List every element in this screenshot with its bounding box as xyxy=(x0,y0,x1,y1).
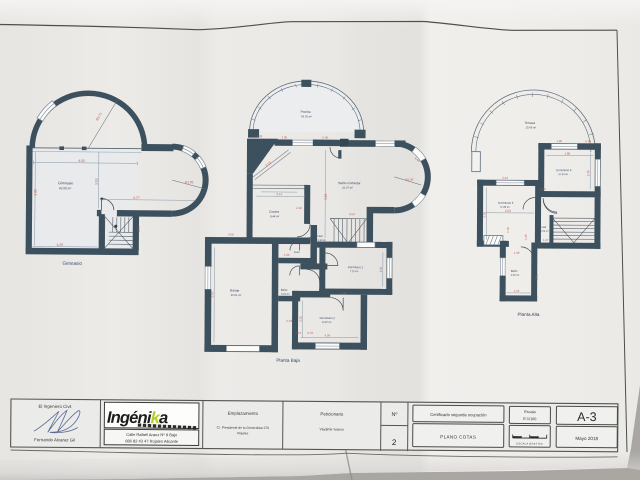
svg-text:20.37 m²: 20.37 m² xyxy=(342,186,353,190)
svg-text:1.45: 1.45 xyxy=(524,234,528,240)
svg-text:A-3: A-3 xyxy=(577,410,597,424)
svg-text:3.30: 3.30 xyxy=(299,316,303,322)
svg-text:1.70: 1.70 xyxy=(506,227,510,233)
svg-text:2.51: 2.51 xyxy=(210,291,214,297)
svg-text:1.90: 1.90 xyxy=(282,135,288,139)
svg-text:2.81: 2.81 xyxy=(379,266,383,272)
svg-text:2.23: 2.23 xyxy=(502,176,508,180)
svg-text:Hall: Hall xyxy=(541,225,546,229)
svg-text:6.00 m²: 6.00 m² xyxy=(281,293,290,296)
svg-text:Dormitorio 1: Dormitorio 1 xyxy=(348,265,364,269)
svg-text:3.44: 3.44 xyxy=(276,192,282,196)
svg-text:Cocina: Cocina xyxy=(269,210,279,214)
svg-text:Ingénika: Ingénika xyxy=(107,409,168,427)
svg-text:Emplazamiento: Emplazamiento xyxy=(228,411,259,416)
svg-text:Planta Alta: Planta Alta xyxy=(517,312,539,317)
svg-text:Salón-Comedor: Salón-Comedor xyxy=(338,181,361,185)
svg-text:0.90: 0.90 xyxy=(323,136,329,140)
svg-text:4.02: 4.02 xyxy=(78,159,85,163)
svg-text:Fernando Alcaraz Gil: Fernando Alcaraz Gil xyxy=(34,437,75,442)
svg-text:3.53: 3.53 xyxy=(95,178,99,185)
svg-text:El Ingeniero Civil: El Ingeniero Civil xyxy=(38,404,71,409)
svg-text:Peticionario: Peticionario xyxy=(320,411,344,416)
svg-text:Vladimir Ivanov: Vladimir Ivanov xyxy=(319,427,344,431)
svg-text:Garaje: Garaje xyxy=(230,289,240,293)
svg-text:Nº: Nº xyxy=(391,412,397,418)
svg-text:10.33 m²: 10.33 m² xyxy=(558,173,568,176)
svg-text:2.20: 2.20 xyxy=(296,206,302,210)
svg-text:Mayo 2018: Mayo 2018 xyxy=(575,436,598,441)
svg-text:Dormitorio 3: Dormitorio 3 xyxy=(498,201,514,205)
svg-text:3.80: 3.80 xyxy=(34,189,38,196)
svg-text:4.77: 4.77 xyxy=(133,196,140,200)
svg-text:Calle Rafaél Araez Nº 9 Bajo: Calle Rafaél Araez Nº 9 Bajo xyxy=(126,432,178,437)
svg-text:7.20 m²: 7.20 m² xyxy=(350,270,359,273)
svg-text:1.99 m²: 1.99 m² xyxy=(540,230,548,233)
svg-text:686 82 43 47 Rojales Alicante: 686 82 43 47 Rojales Alicante xyxy=(125,438,179,443)
svg-text:0.63: 0.63 xyxy=(287,319,293,323)
svg-text:1.03: 1.03 xyxy=(257,134,263,138)
svg-text:R1.50: R1.50 xyxy=(405,177,413,181)
svg-text:20.51 m²: 20.51 m² xyxy=(231,293,242,297)
svg-text:2.81: 2.81 xyxy=(535,274,539,280)
svg-text:Escala: Escala xyxy=(524,410,536,414)
svg-text:Gimnasio: Gimnasio xyxy=(58,181,73,185)
svg-text:15.66 m²: 15.66 m² xyxy=(525,125,536,129)
svg-text:1.07: 1.07 xyxy=(543,238,549,242)
svg-text:10.87 m²: 10.87 m² xyxy=(322,321,332,324)
svg-text:1.30: 1.30 xyxy=(341,291,347,295)
svg-text:2: 2 xyxy=(392,438,397,447)
svg-text:Baño: Baño xyxy=(281,288,288,292)
svg-text:ESCALA GRAFICA: ESCALA GRAFICA xyxy=(516,441,543,445)
svg-text:2.23: 2.23 xyxy=(505,209,511,213)
svg-text:C/. Presidente de la Generalit: C/. Presidente de la Generalitat 279 xyxy=(217,426,270,430)
svg-text:Terraza: Terraza xyxy=(524,121,535,125)
svg-text:Porche: Porche xyxy=(301,110,311,114)
svg-text:Planta Baja: Planta Baja xyxy=(276,358,300,363)
svg-text:1.30: 1.30 xyxy=(137,226,141,232)
svg-text:1.44: 1.44 xyxy=(514,289,520,293)
svg-text:3.83: 3.83 xyxy=(324,194,328,200)
svg-text:Aseo: Aseo xyxy=(294,250,300,254)
svg-text:63.02 m²: 63.02 m² xyxy=(301,114,312,118)
svg-text:1.80: 1.80 xyxy=(564,152,570,156)
svg-text:4.28: 4.28 xyxy=(57,243,63,247)
svg-text:Dormitorio 2: Dormitorio 2 xyxy=(320,316,336,320)
svg-text:0.63: 0.63 xyxy=(349,212,355,216)
svg-text:R1.81: R1.81 xyxy=(185,180,194,184)
svg-text:Gimnasio: Gimnasio xyxy=(62,261,82,266)
svg-text:Certificado segunda ocupación: Certificado segunda ocupación xyxy=(430,412,487,417)
svg-text:1.10: 1.10 xyxy=(540,187,546,191)
svg-text:0.44: 0.44 xyxy=(296,331,302,335)
svg-text:PLANO COTAS: PLANO COTAS xyxy=(440,434,476,439)
svg-text:3.30: 3.30 xyxy=(483,212,487,218)
svg-text:1.35: 1.35 xyxy=(514,251,520,255)
svg-text:4.04: 4.04 xyxy=(324,334,330,338)
svg-text:4.33 m²: 4.33 m² xyxy=(511,274,520,277)
svg-text:1.80: 1.80 xyxy=(556,139,562,143)
svg-text:Rojales: Rojales xyxy=(237,431,248,435)
svg-text:0.60: 0.60 xyxy=(585,139,591,143)
svg-text:3.58: 3.58 xyxy=(228,233,234,237)
svg-text:Baño: Baño xyxy=(511,269,518,273)
svg-text:0.70: 0.70 xyxy=(308,331,314,335)
svg-text:2.30: 2.30 xyxy=(586,170,590,176)
svg-text:1.86: 1.86 xyxy=(284,253,290,257)
svg-text:82.00 m²: 82.00 m² xyxy=(59,186,71,190)
svg-text:Hall: Hall xyxy=(318,234,323,238)
svg-text:8.44 m²: 8.44 m² xyxy=(270,214,279,218)
svg-text:E:1/100: E:1/100 xyxy=(523,417,536,421)
svg-text:Dormitorio 4: Dormitorio 4 xyxy=(556,168,572,172)
